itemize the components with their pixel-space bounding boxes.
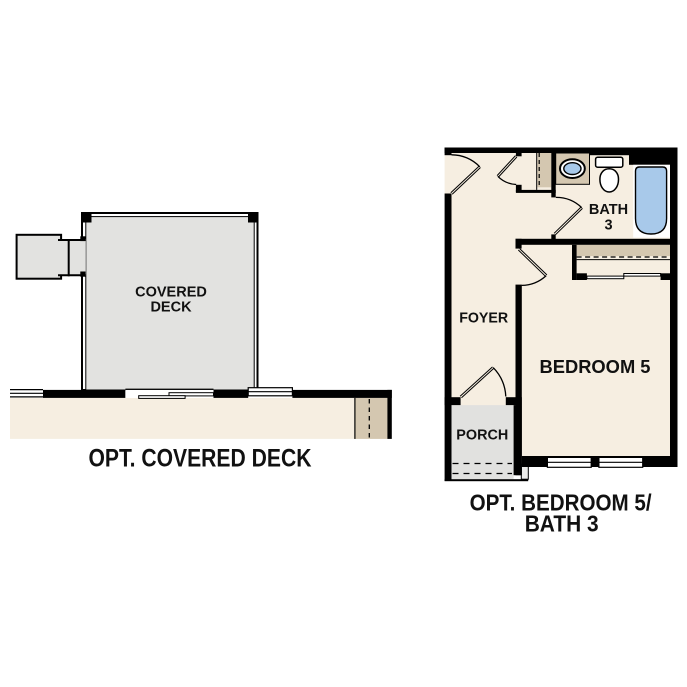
svg-text:BEDROOM 5: BEDROOM 5 (540, 357, 651, 377)
svg-text:OPT. COVERED DECK: OPT. COVERED DECK (89, 445, 312, 473)
svg-text:PORCH: PORCH (456, 427, 508, 443)
svg-text:FOYER: FOYER (459, 311, 508, 327)
svg-text:BATH: BATH (589, 202, 628, 218)
svg-text:COVERED: COVERED (135, 285, 207, 301)
svg-text:3: 3 (604, 218, 612, 234)
svg-text:DECK: DECK (150, 300, 192, 316)
svg-text:BATH 3: BATH 3 (525, 511, 599, 537)
